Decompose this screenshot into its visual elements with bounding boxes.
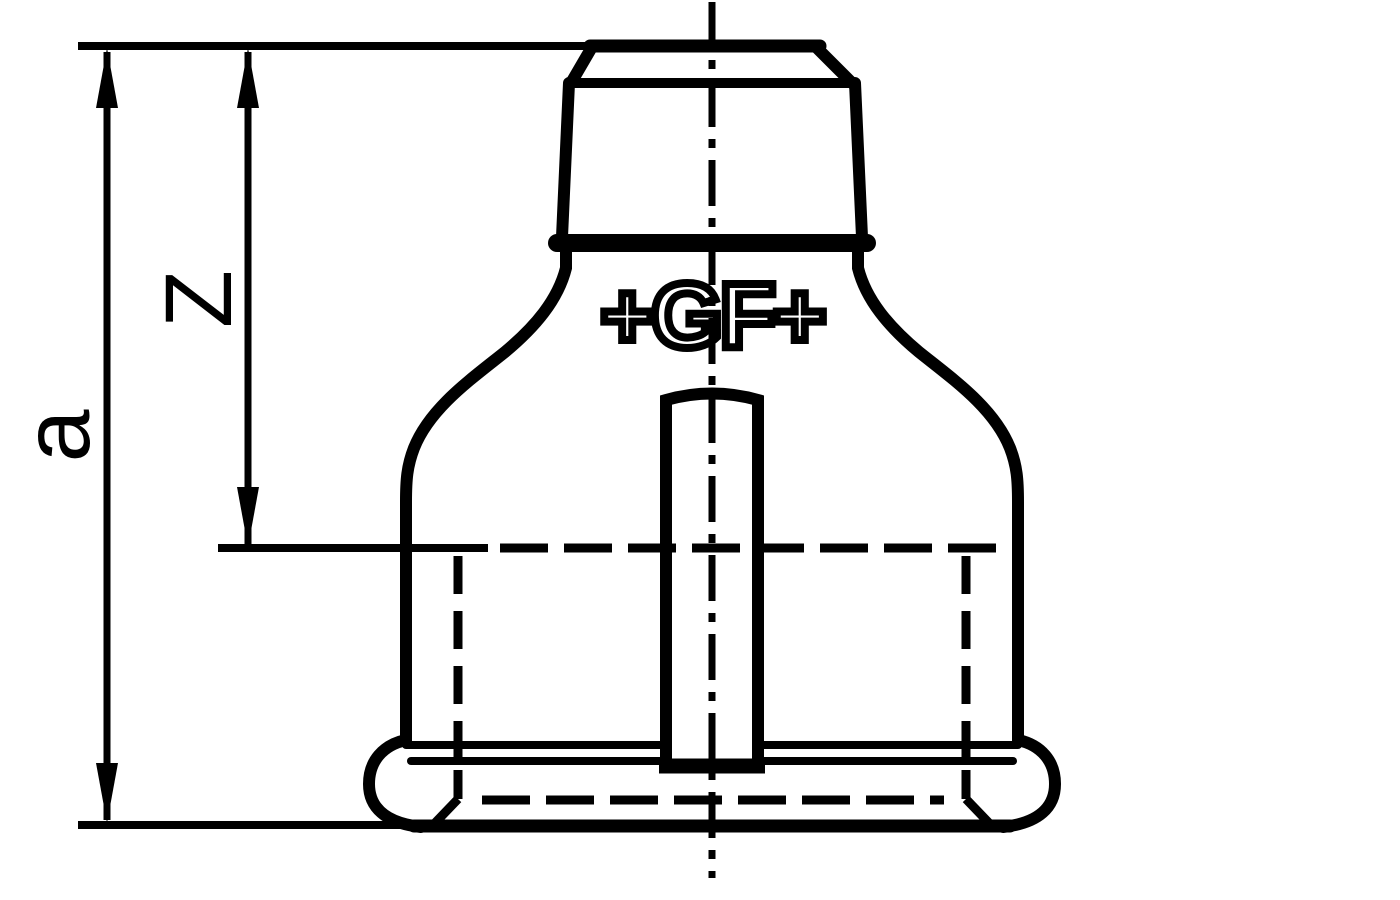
- spigot-left-wall: [562, 83, 569, 237]
- spigot-right-wall: [855, 83, 862, 237]
- drawing-svg: a Z: [0, 0, 1400, 900]
- dimension-z-label: Z: [146, 270, 252, 328]
- fitting-technical-drawing: a Z: [0, 0, 1400, 900]
- dimension-a-label: a: [4, 409, 110, 462]
